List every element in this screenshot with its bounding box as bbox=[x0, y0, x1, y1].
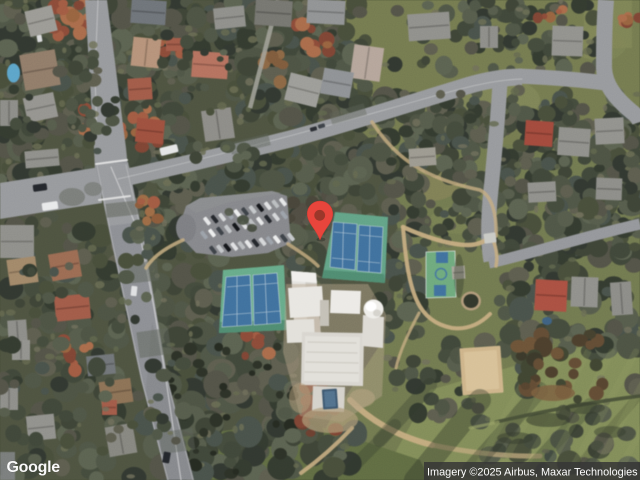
svg-text:Imagery ©2025 Airbus, Maxar Te: Imagery ©2025 Airbus, Maxar Technologies bbox=[427, 467, 638, 479]
svg-text:Google: Google bbox=[7, 459, 61, 476]
